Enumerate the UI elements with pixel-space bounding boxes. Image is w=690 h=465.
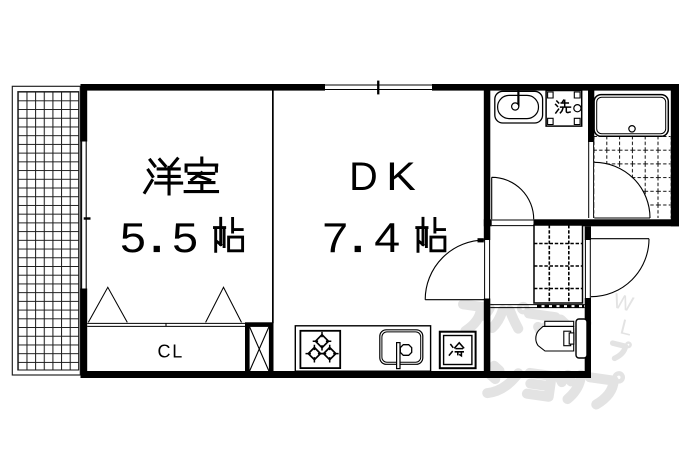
svg-text:4: 4	[374, 215, 400, 261]
svg-text:CL: CL	[158, 342, 184, 362]
svg-text:D: D	[349, 155, 378, 199]
svg-text:K: K	[386, 154, 416, 198]
svg-text:5: 5	[172, 215, 198, 261]
svg-text:5: 5	[120, 215, 146, 261]
svg-text:7: 7	[322, 215, 348, 261]
